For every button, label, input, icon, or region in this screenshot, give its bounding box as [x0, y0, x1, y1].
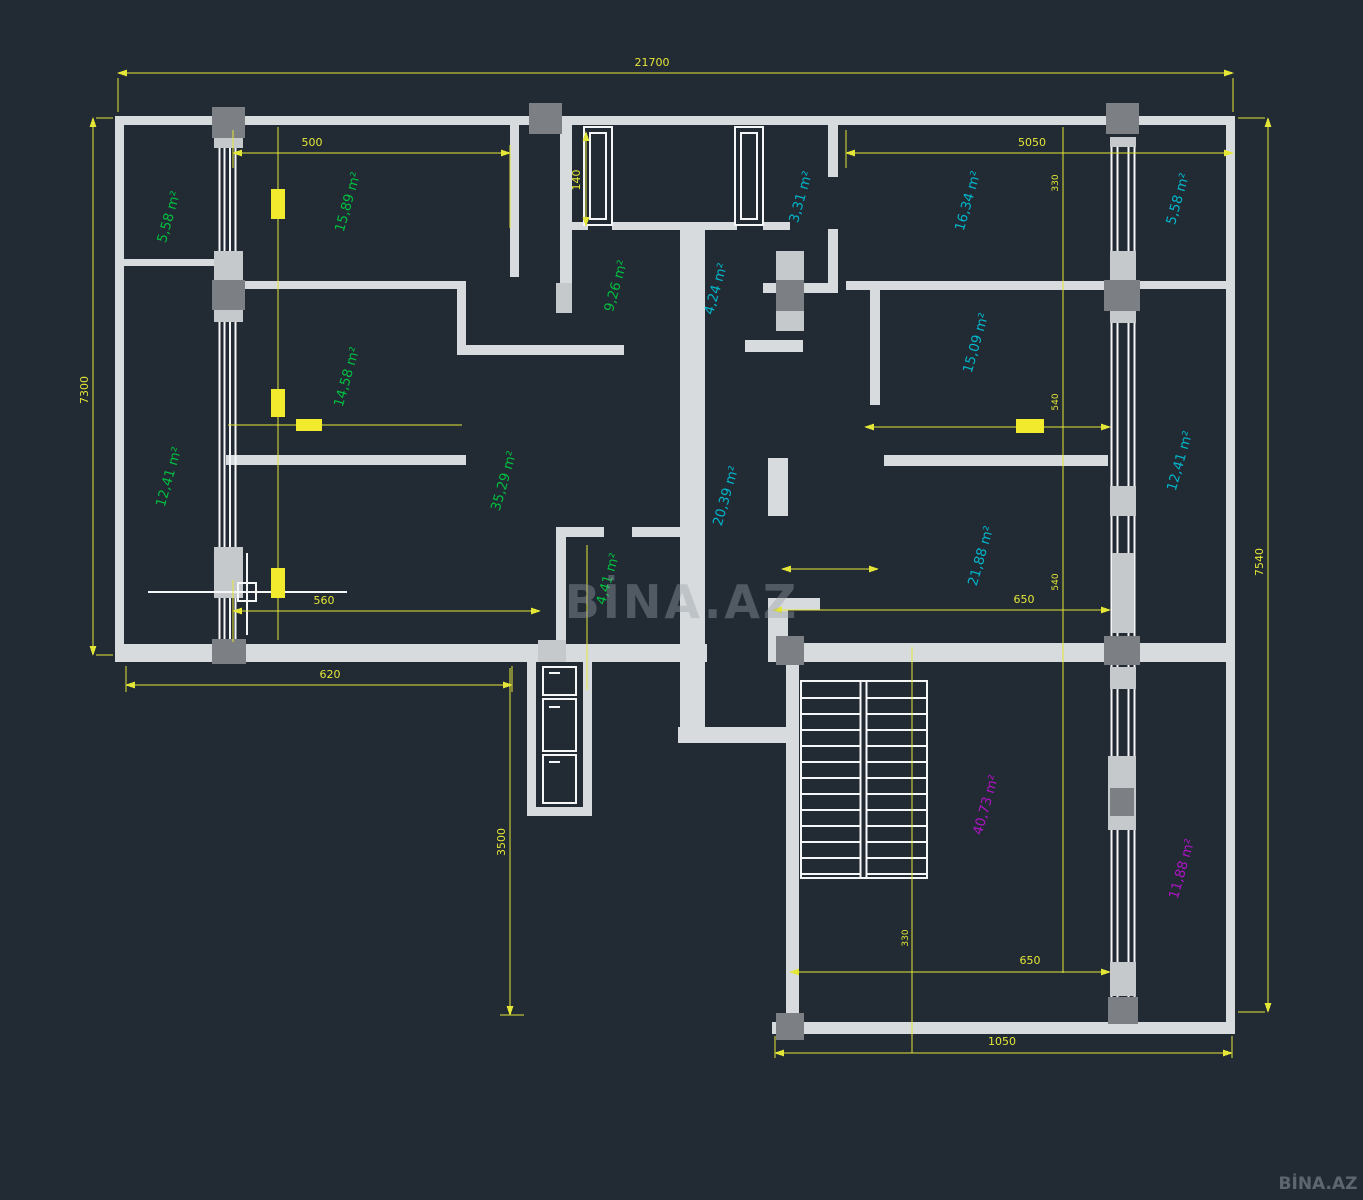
watermark-center: BİNA.AZ: [565, 575, 800, 629]
dim-left-height: 7300: [78, 376, 91, 404]
dim-tick-330-top: 330: [1051, 174, 1061, 191]
floor-plan-canvas: 21700 7300 7540 3500 500 140 5050 330 54…: [0, 0, 1363, 1200]
dim-overall-width: 21700: [635, 56, 670, 69]
dim-tick-540-upper: 540: [1051, 393, 1061, 410]
entry-door-left: [584, 127, 612, 225]
dim-right-top-width: 5050: [1018, 136, 1046, 149]
dim-elevator-drop: 3500: [495, 828, 508, 856]
elevator-shaft: [543, 667, 576, 803]
dim-tick-540-lower: 540: [1051, 573, 1061, 590]
watermark-corner: BİNA.AZ: [1279, 1172, 1358, 1194]
dim-left-bottom-outer: 620: [320, 668, 341, 681]
dim-entry-door-width: 140: [570, 170, 583, 191]
dim-left-bottom-width: 560: [314, 594, 335, 607]
dim-right-height: 7540: [1253, 548, 1266, 576]
entry-door-right: [735, 127, 763, 225]
dim-tick-330-stair: 330: [901, 929, 911, 946]
dim-stair-width: 650: [1020, 954, 1041, 967]
dim-room-top-left-width: 500: [302, 136, 323, 149]
dim-living-right-width: 650: [1014, 593, 1035, 606]
dim-wing-width: 1050: [988, 1035, 1016, 1048]
